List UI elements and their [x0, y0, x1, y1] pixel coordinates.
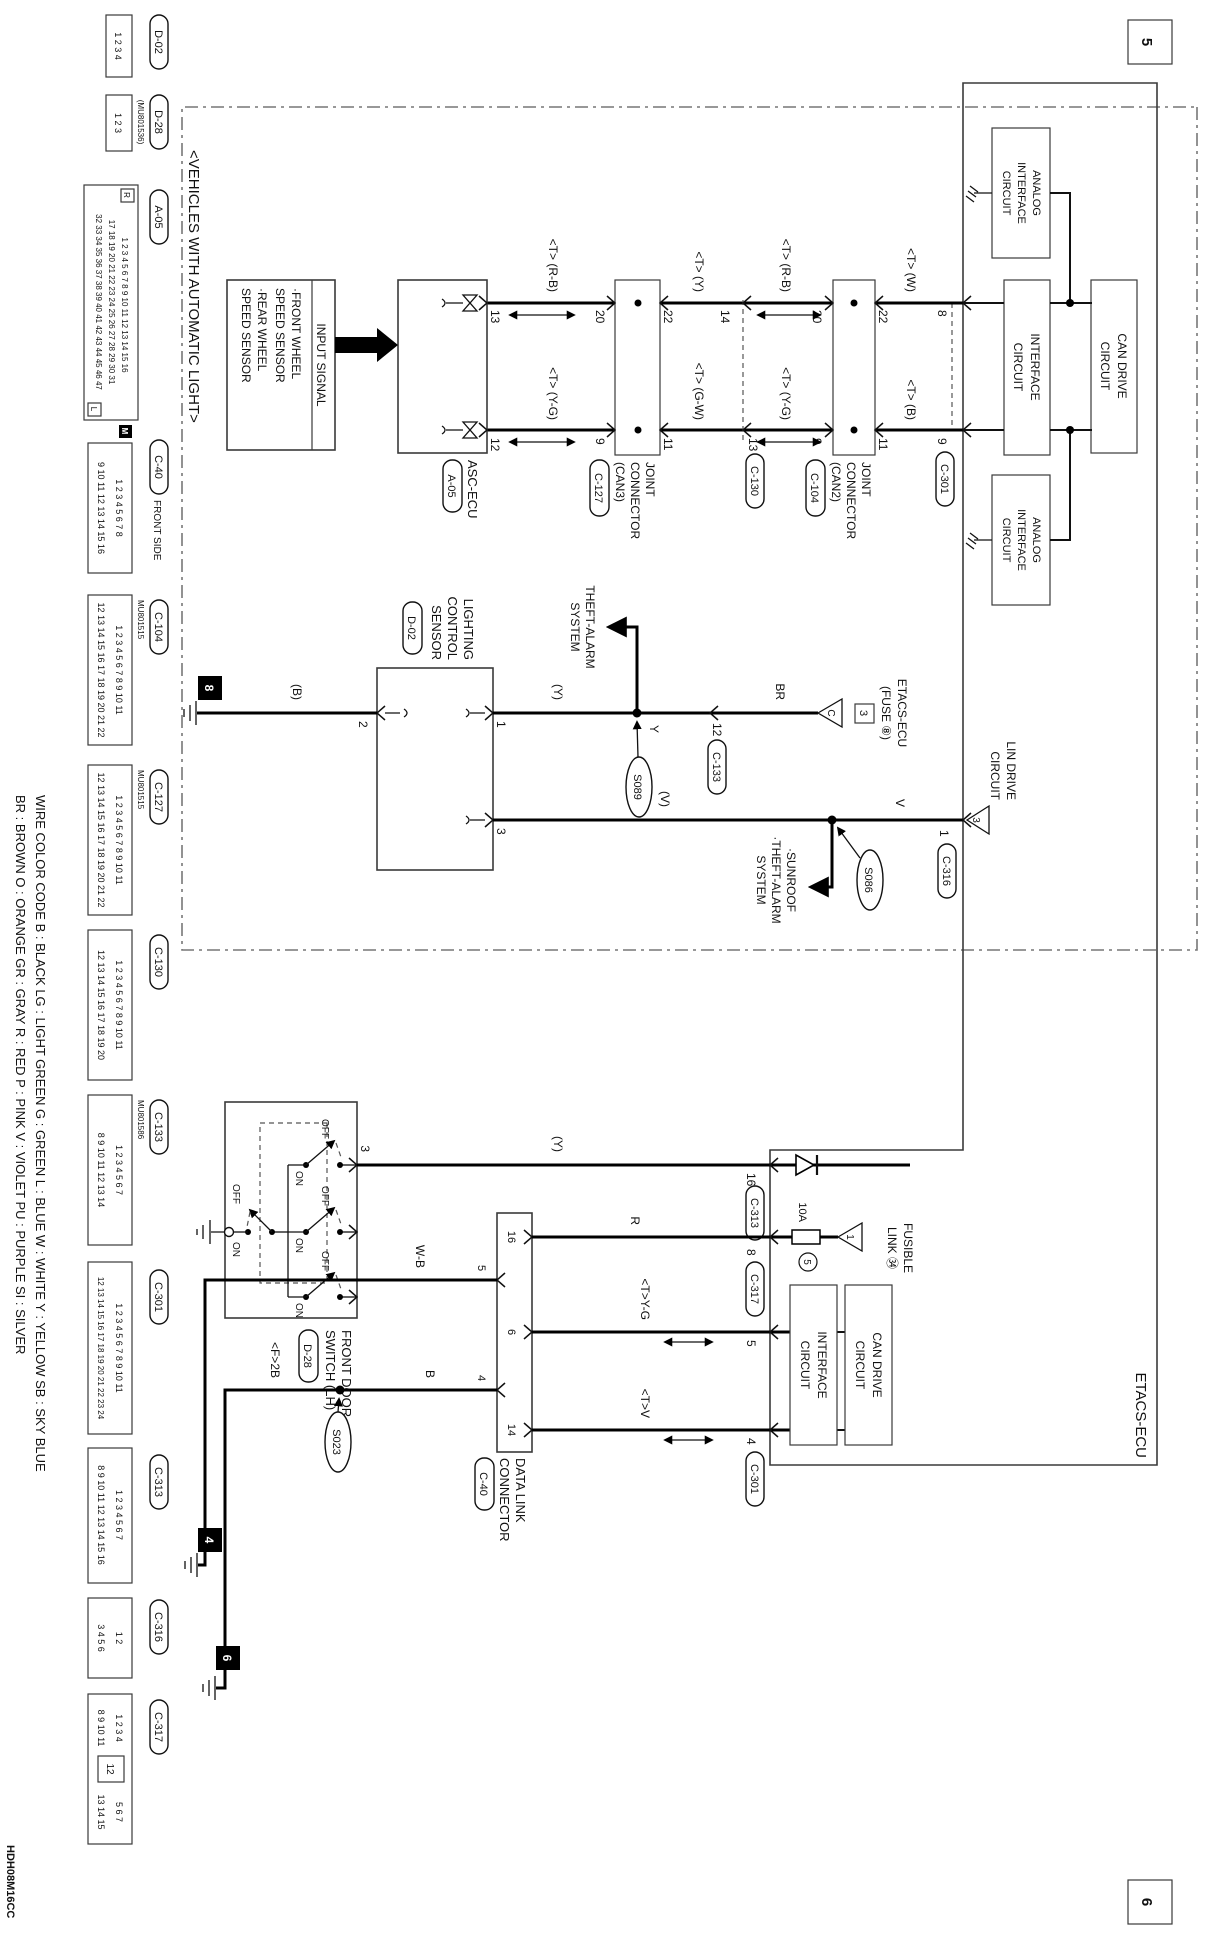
svg-text:C-104: C-104 — [152, 612, 164, 642]
wiring-diagram-page: 5 6 <VEHICLES WITH AUTOMATIC LIGHT> ETAC… — [0, 0, 1210, 1947]
wire-label-b-par: (B) — [290, 684, 304, 700]
pin-9c: 9 — [593, 438, 607, 445]
sheet-6-label: 6 — [1138, 1898, 1155, 1906]
jc3-line1: JOINT — [643, 462, 657, 497]
badge-c301-b: C-301 — [746, 1452, 764, 1506]
svg-text:3 4 5 6: 3 4 5 6 — [96, 1624, 106, 1652]
input-signal-title: INPUT SIGNAL — [314, 323, 328, 406]
pin-22: 22 — [876, 310, 890, 324]
svg-text:D-02: D-02 — [152, 30, 164, 54]
pinout-d02: D-02 1 2 3 4 — [106, 15, 168, 77]
pinout-c317: C-317 1 2 3 4 8 9 10 11 12 5 6 7 13 14 1… — [88, 1694, 168, 1844]
svg-text:1 2: 1 2 — [114, 1632, 124, 1645]
fusible-triangle-number: 1 — [844, 1234, 855, 1240]
pin-3: 3 — [494, 828, 508, 835]
wiring-diagram: 5 6 <VEHICLES WITH AUTOMATIC LIGHT> ETAC… — [0, 0, 1210, 1947]
pin-9: 9 — [935, 438, 949, 445]
pin-14: 14 — [718, 310, 732, 324]
wire-label-y: Y — [647, 725, 661, 733]
pin-8b: 8 — [744, 1249, 758, 1256]
automatic-light-region: <VEHICLES WITH AUTOMATIC LIGHT> — [182, 107, 1197, 950]
aic1-line1: ANALOG — [1030, 170, 1042, 216]
svg-text:C-40: C-40 — [152, 455, 164, 479]
ifc2-line1: INTERFACE — [815, 1331, 829, 1398]
wire-label-v-par: (V) — [658, 791, 672, 807]
pinout-c301: C-301 1 2 3 4 5 6 7 8 9 10 11 12 13 14 1… — [88, 1262, 168, 1434]
ground-icon — [203, 1676, 215, 1700]
svg-text:1 2 3 4: 1 2 3 4 — [113, 32, 123, 60]
fuse8-ref-number: 3 — [857, 710, 869, 716]
dlc-r-wire: 1 5 10A FUSIBLE LINK ㉞ — [532, 1202, 915, 1273]
lin-line2: CIRCUIT — [988, 751, 1002, 800]
sensor-badge: D-02 — [405, 616, 417, 640]
pinout-c316: C-316 1 2 3 4 5 6 — [88, 1598, 168, 1678]
svg-text:1 2 3 4 5 6 7: 1 2 3 4 5 6 7 — [114, 1490, 124, 1540]
sensor-line1: LIGHTING — [461, 599, 476, 660]
wire-label-tyg1b: <T> (Y-G) — [546, 367, 560, 420]
section-label: <VEHICLES WITH AUTOMATIC LIGHT> — [185, 150, 202, 423]
svg-text:D-28: D-28 — [152, 110, 164, 134]
svg-text:FRONT SIDE: FRONT SIDE — [151, 500, 162, 561]
pin-11: 11 — [876, 438, 890, 451]
svg-text:12 13 14 15 16 17 18 19 20: 12 13 14 15 16 17 18 19 20 — [96, 950, 106, 1060]
svg-text:R: R — [122, 192, 131, 198]
svg-text:C-301: C-301 — [938, 464, 950, 494]
lin-drive-ref: LIN DRIVE CIRCUIT 3 — [967, 741, 1018, 834]
pinout-c313: C-313 1 2 3 4 5 6 7 8 9 10 11 12 13 14 1… — [88, 1448, 168, 1583]
etacs-ecu-box: ETACS-ECU — [770, 83, 1157, 1465]
jc2-line1: JOINT — [859, 462, 873, 497]
dlc-pin-6: 6 — [505, 1329, 517, 1335]
svg-text:12 13 14 15 16 17 18 19 20 21: 12 13 14 15 16 17 18 19 20 21 22 — [96, 772, 106, 907]
door-badge: D-28 — [301, 1344, 313, 1368]
door-switch-y-wire — [357, 1155, 910, 1175]
wire-label-f2b: <F>2B — [268, 1342, 282, 1378]
fuse8-line1: ETACS-ECU — [895, 679, 909, 747]
diode-icon — [796, 1155, 814, 1175]
input-line4: SPEED SENSOR — [239, 288, 253, 383]
aic1-line2: INTERFACE — [1015, 162, 1027, 224]
svg-text:C-130: C-130 — [152, 947, 164, 977]
wire-color-legend-2: BR : BROWN O : ORANGE GR : GRAY R : RED … — [13, 795, 28, 1354]
pin-12b: 12 — [710, 723, 724, 737]
svg-text:1 2 3 4 5 6 7 8 9 10 11: 1 2 3 4 5 6 7 8 9 10 11 — [114, 795, 124, 884]
lin-line1: LIN DRIVE — [1004, 741, 1018, 800]
pin-3b: 3 — [358, 1145, 372, 1152]
dlc-line2: CONNECTOR — [497, 1458, 512, 1542]
fusible-line1: FUSIBLE — [901, 1223, 915, 1273]
off-label: OFF — [319, 1251, 330, 1271]
analog-interface-circuit-1: ANALOG INTERFACE CIRCUIT — [966, 128, 1050, 258]
jc2-line3: (CAN2) — [829, 462, 843, 502]
svg-text:8 9 10 11 12 13 14 15 16: 8 9 10 11 12 13 14 15 16 — [96, 1465, 106, 1564]
off-label: OFF — [230, 1184, 241, 1204]
interface-circuit-1: INTERFACE CIRCUIT — [1004, 280, 1050, 455]
svg-text:1 2 3 4 5 6 7 8 9 10 11 12 13: 1 2 3 4 5 6 7 8 9 10 11 12 13 14 15 16 — [120, 237, 129, 373]
svg-text:12 13 14 15 16 17 18 19 20 21: 12 13 14 15 16 17 18 19 20 21 22 23 24 — [96, 1277, 105, 1420]
svg-text:L: L — [89, 407, 98, 412]
door-line1: FRONT DOOR — [339, 1330, 354, 1417]
fuse8-triangle-letter: C — [825, 709, 836, 716]
pin-4b: 4 — [744, 1438, 758, 1445]
wire-label-v: V — [893, 799, 907, 807]
input-line1: ·FRONT WHEEL — [289, 288, 303, 379]
door-line2: SWITCH (LH) — [323, 1330, 338, 1410]
shield-ground-icon — [966, 186, 992, 202]
svg-text:(MU801536): (MU801536) — [136, 100, 145, 145]
cdc2-line2: CIRCUIT — [853, 1341, 867, 1390]
off-label: OFF — [319, 1119, 330, 1139]
svg-text:MU801515: MU801515 — [136, 770, 145, 810]
wire-label-tw: <T> (W) — [904, 248, 918, 292]
wire-label-tb: <T> (B) — [904, 379, 918, 420]
svg-text:C-313: C-313 — [748, 1198, 760, 1228]
ground-ref-4: 4 — [202, 1537, 216, 1544]
svg-text:C-133: C-133 — [710, 752, 722, 782]
svg-text:S086: S086 — [862, 867, 874, 893]
pinout-c104: C-104 MU801515 1 2 3 4 5 6 7 8 9 10 11 1… — [88, 595, 168, 745]
svg-text:M: M — [120, 428, 129, 435]
lighting-control-sensor: LIGHTING CONTROL SENSOR D-02 — [377, 596, 493, 870]
pin-12: 12 — [488, 438, 502, 452]
jc3-badge: C-127 — [592, 473, 604, 503]
input-line3: ·REAR WHEEL — [255, 288, 269, 372]
analog-interface-circuit-2: ANALOG INTERFACE CIRCUIT — [966, 475, 1050, 605]
pin-20b: 20 — [593, 310, 607, 324]
svg-text:8 9 10 11 12 13 14: 8 9 10 11 12 13 14 — [96, 1133, 106, 1207]
twisted-pair-icon — [463, 422, 477, 438]
input-arrow-icon — [335, 328, 398, 362]
jc3-line2: CONNECTOR — [628, 462, 642, 539]
dlc-pin-16: 16 — [505, 1231, 517, 1243]
dlc-badge: C-40 — [477, 1472, 489, 1496]
wire-label-tv: <T>V — [638, 1389, 652, 1418]
asc-ecu-box: ASC-ECU A-05 — [398, 280, 487, 519]
svg-text:C-317: C-317 — [748, 1274, 760, 1304]
svg-text:C-313: C-313 — [152, 1467, 164, 1497]
svg-text:12: 12 — [104, 1763, 115, 1775]
svg-text:17 18 19 20 21 22 23 24 25 26: 17 18 19 20 21 22 23 24 25 26 27 28 29 3… — [107, 220, 116, 385]
door-switch-contact-2: OFF ON — [288, 1186, 357, 1253]
wire-label-tgw: <T> (G-W) — [692, 363, 706, 420]
pinout-c130: C-130 1 2 3 4 5 6 7 8 9 10 11 12 13 14 1… — [88, 930, 168, 1080]
svg-text:C-316: C-316 — [940, 856, 952, 886]
svg-text:C-301: C-301 — [748, 1464, 760, 1494]
sheet-ref-5: 5 — [1128, 20, 1172, 64]
badge-c301: C-301 — [936, 452, 954, 506]
theft-line1: THEFT-ALARM — [583, 585, 597, 668]
pin-1b: 1 — [937, 830, 951, 837]
shield-ground-icon — [966, 533, 992, 549]
pin-2: 2 — [356, 721, 370, 728]
asc-badge: A-05 — [445, 474, 457, 497]
pinout-c40: C-40 FRONT SIDE M 1 2 3 4 5 6 7 8 9 10 1… — [88, 425, 168, 573]
badge-c316: C-316 — [938, 844, 956, 898]
wire-label-wb: W-B — [413, 1245, 427, 1268]
off-label: OFF — [319, 1186, 330, 1206]
svg-text:S089: S089 — [631, 774, 643, 800]
aic2-line3: CIRCUIT — [1000, 518, 1012, 563]
sensor-v-wire — [493, 813, 971, 887]
svg-text:1 2 3 4 5 6 7 8 9 10 11: 1 2 3 4 5 6 7 8 9 10 11 — [114, 1303, 124, 1392]
svg-text:A-05: A-05 — [152, 205, 164, 228]
svg-text:8 9 10 11: 8 9 10 11 — [96, 1710, 106, 1747]
fuse8-line2: (FUSE ⑧) — [879, 686, 893, 740]
sunroof-line3: SYSTEM — [754, 855, 768, 904]
wire-label-br: BR — [773, 683, 787, 700]
sensor-line2: CONTROL — [445, 596, 460, 660]
door-switch-contact-3: OFF ON — [288, 1251, 357, 1318]
pin-1: 1 — [494, 721, 508, 728]
pinout-c127: C-127 MU801515 1 2 3 4 5 6 7 8 9 10 11 1… — [88, 765, 168, 915]
splice-s089: S089 — [626, 722, 652, 817]
splice-s086: S086 — [838, 828, 883, 910]
doc-code: HDH08M16CC — [4, 1845, 16, 1918]
wire-label-trb1: <T> (R-B) — [779, 239, 793, 292]
ground-ref-8: 8 — [202, 685, 216, 692]
wire-label-ty: <T> (Y) — [692, 251, 706, 292]
pin-20: 20 — [810, 310, 824, 324]
svg-text:1 2 3 4 5 6 7 8: 1 2 3 4 5 6 7 8 — [114, 479, 124, 537]
jc2-badge: C-104 — [808, 473, 820, 503]
ifc2-line2: CIRCUIT — [798, 1341, 812, 1390]
badge-c313: C-313 — [746, 1186, 764, 1240]
theft-line2: SYSTEM — [568, 602, 582, 651]
on-label: ON — [293, 1238, 304, 1253]
sensor-line3: SENSOR — [429, 605, 444, 660]
cdc2-line1: CAN DRIVE — [870, 1332, 884, 1397]
fuse-icon — [792, 1230, 820, 1244]
sheet-5-label: 5 — [1138, 38, 1155, 46]
wire-label-ydoor: (Y) — [551, 1136, 565, 1152]
svg-text:1 2 3 4 5 6 7 8 9 10 11: 1 2 3 4 5 6 7 8 9 10 11 — [114, 960, 124, 1049]
sunroof-line2: ·THEFT-ALARM — [769, 836, 783, 923]
aic2-line1: ANALOG — [1030, 517, 1042, 563]
ifc1-line1: INTERFACE — [1028, 333, 1042, 400]
wire-label-r: R — [628, 1216, 642, 1225]
can-drive-circuit-2: CAN DRIVE CIRCUIT — [845, 1285, 892, 1445]
svg-text:MU801586: MU801586 — [136, 1100, 145, 1140]
input-signal-box: INPUT SIGNAL ·FRONT WHEEL SPEED SENSOR ·… — [227, 280, 398, 450]
data-link-connector: 16 6 14 5 4 DATA LINK CONNECTOR C-40 — [475, 1213, 532, 1542]
svg-text:5 6 7: 5 6 7 — [114, 1802, 124, 1822]
svg-text:32 33 34 35 36 37 38 39 40 41: 32 33 34 35 36 37 38 39 40 41 42 43 44 4… — [94, 214, 103, 390]
svg-text:1 2 3 4 5 6 7: 1 2 3 4 5 6 7 — [114, 1145, 124, 1195]
svg-text:C-316: C-316 — [152, 1612, 164, 1642]
input-line2: SPEED SENSOR — [273, 288, 287, 383]
etacs-fuse8-ref: C 3 ETACS-ECU (FUSE ⑧) — [818, 679, 909, 747]
ifc1-line2: CIRCUIT — [1011, 343, 1025, 392]
door-switch-ground-contact: OFF ON — [225, 1184, 289, 1257]
sheet-ref-6: 6 — [1128, 1880, 1172, 1924]
rotated-stage: 5 6 <VEHICLES WITH AUTOMATIC LIGHT> ETAC… — [0, 0, 1210, 1947]
dlc-pin-5: 5 — [475, 1265, 487, 1271]
svg-text:C-127: C-127 — [152, 782, 164, 812]
can-drive-circuit-1: CAN DRIVE CIRCUIT — [1091, 280, 1137, 453]
pin-5b: 5 — [744, 1340, 758, 1347]
ground-icon — [185, 1553, 197, 1577]
svg-text:1 2 3 4 5 6 7 8 9 10 11: 1 2 3 4 5 6 7 8 9 10 11 — [114, 625, 124, 714]
c301-entry-chevrons — [963, 296, 971, 437]
badge-c133: C-133 — [708, 740, 726, 794]
svg-text:1 2 3 4: 1 2 3 4 — [114, 1714, 124, 1742]
connector-pinouts: D-02 1 2 3 4 D-28 (MU801536) 1 2 3 A-05 … — [84, 15, 168, 1844]
dlc-pin-14: 14 — [505, 1424, 517, 1436]
ground-icon — [184, 701, 196, 725]
asc-ecu-label: ASC-ECU — [465, 460, 480, 519]
svg-text:C-301: C-301 — [152, 1282, 164, 1312]
wire-label-tyg1: <T> (Y-G) — [779, 367, 793, 420]
fuse-rating: 10A — [796, 1202, 808, 1222]
svg-text:C-133: C-133 — [152, 1112, 164, 1142]
svg-text:C-317: C-317 — [152, 1712, 164, 1742]
on-label: ON — [230, 1242, 241, 1257]
twisted-pair-icon — [463, 295, 477, 311]
svg-text:12 13 14 15 16 17 18 19 20 21: 12 13 14 15 16 17 18 19 20 21 22 — [96, 602, 106, 737]
sunroof-line1: ·SUNROOF — [784, 848, 798, 912]
etacs-ecu-label: ETACS-ECU — [1132, 1372, 1149, 1458]
fusible-line2: LINK ㉞ — [885, 1227, 899, 1269]
jc2-line2: CONNECTOR — [844, 462, 858, 539]
ground-icon — [197, 1220, 224, 1244]
inline-connector-c130: 14 13 C-130 — [718, 296, 764, 508]
pin-16: 16 — [744, 1173, 758, 1187]
svg-text:1 2 3: 1 2 3 — [113, 113, 123, 133]
pin-13b: 13 — [746, 438, 760, 452]
wire-label-b: B — [423, 1370, 437, 1378]
cdc1-line1: CAN DRIVE — [1115, 333, 1129, 398]
sensor-ground-wire: 8 — [184, 676, 377, 725]
pin-8: 8 — [935, 310, 949, 317]
sensor-y-wire — [493, 627, 818, 718]
aic2-line2: INTERFACE — [1015, 509, 1027, 571]
fuse-number: 5 — [801, 1259, 812, 1265]
svg-text:13 14 15: 13 14 15 — [96, 1794, 106, 1829]
pinout-c133: C-133 MU801586 1 2 3 4 5 6 7 8 9 10 11 1… — [88, 1095, 168, 1245]
badge-c317: C-317 — [746, 1262, 764, 1316]
on-label: ON — [293, 1171, 304, 1186]
pinout-d28: D-28 (MU801536) 1 2 3 — [106, 95, 168, 151]
jc3-line3: (CAN3) — [613, 462, 627, 502]
svg-text:9 10 11 12 13 14 15 16: 9 10 11 12 13 14 15 16 — [96, 462, 106, 554]
aic1-line3: CIRCUIT — [1000, 171, 1012, 216]
pinout-a05: A-05 R L 1 2 3 4 5 6 7 8 9 10 11 12 13 1… — [84, 185, 168, 420]
cdc1-line2: CIRCUIT — [1098, 342, 1112, 391]
wire-label-trb2: <T> (R-B) — [546, 239, 560, 292]
ground-ref-6: 6 — [220, 1655, 234, 1662]
door-switch-contact-1: OFF ON — [288, 1119, 357, 1186]
pin-11b: 11 — [661, 438, 675, 451]
lin-ref-number: 3 — [970, 817, 981, 823]
on-label: ON — [293, 1303, 304, 1318]
wire-color-legend-1: WIRE COLOR CODE B : BLACK LG : LIGHT GRE… — [33, 795, 48, 1472]
dlc-line1: DATA LINK — [513, 1458, 528, 1523]
wire-label-y-par: (Y) — [551, 684, 565, 700]
c130-badge: C-130 — [748, 466, 760, 496]
svg-text:S023: S023 — [330, 1429, 342, 1455]
interface-circuit-2: INTERFACE CIRCUIT — [790, 1285, 837, 1445]
dlc-pin-4: 4 — [475, 1375, 487, 1381]
svg-text:MU801515: MU801515 — [136, 600, 145, 640]
wire-label-tyg2: <T>Y-G — [638, 1278, 652, 1320]
pin-22b: 22 — [661, 310, 675, 324]
pin-13: 13 — [488, 310, 502, 324]
